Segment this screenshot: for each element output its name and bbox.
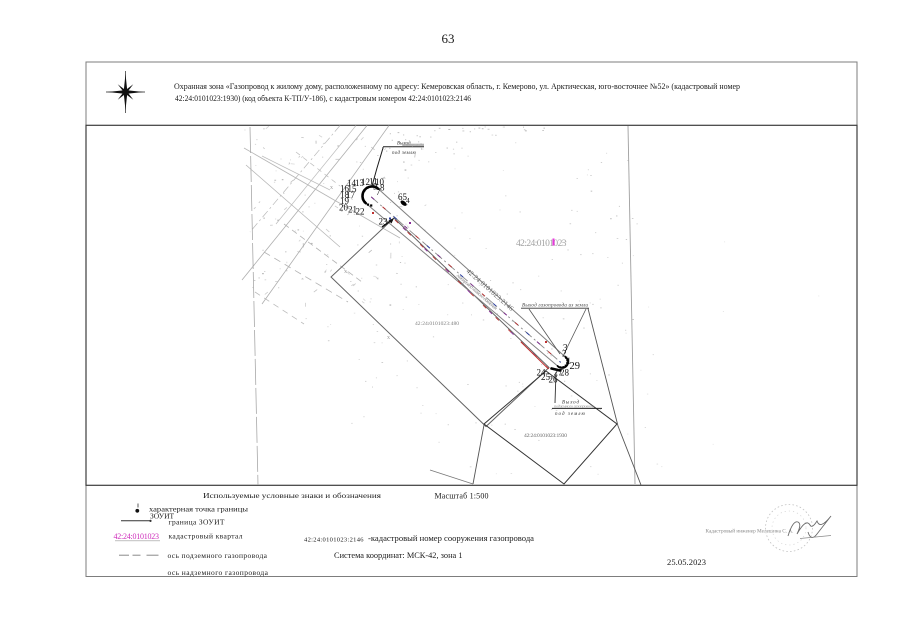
svg-text:42:24:0101023: 42:24:0101023 xyxy=(516,239,567,249)
svg-text:22: 22 xyxy=(356,207,365,217)
svg-text:ось надземного газопровода: ось надземного газопровода xyxy=(168,568,269,577)
svg-text:Кадастровый инженер Мелешина: Кадастровый инженер Мелешина С. А. xyxy=(706,530,794,535)
svg-text:под землю: под землю xyxy=(555,412,585,417)
svg-text:Масштаб 1:500: Масштаб 1:500 xyxy=(435,492,489,501)
svg-text:42:24:0101023:1930: 42:24:0101023:1930 xyxy=(524,433,567,439)
svg-text:42:24:0101023:1930) (код объек: 42:24:0101023:1930) (код объекта К-ТП/У-… xyxy=(175,94,471,103)
svg-text:Система координат: МСК-42, зон: Система координат: МСК-42, зона 1 xyxy=(334,550,463,560)
svg-text:42:24:0101023: 42:24:0101023 xyxy=(114,532,160,541)
svg-text:8: 8 xyxy=(380,183,385,193)
svg-text:Используемые условные знаки и: Используемые условные знаки и обозначени… xyxy=(203,491,382,500)
svg-text:7: 7 xyxy=(376,187,381,197)
svg-text:-кадастровый номер сооружения: -кадастровый номер сооружения газопровод… xyxy=(368,534,534,543)
svg-text:42:24:0101023:480: 42:24:0101023:480 xyxy=(415,321,459,327)
svg-text:кадастровый квартал: кадастровый квартал xyxy=(169,532,243,541)
svg-text:42:24:0101023:2146: 42:24:0101023:2146 xyxy=(304,537,364,544)
svg-text:х: х xyxy=(330,185,333,191)
svg-text:х: х xyxy=(387,335,390,341)
svg-text:под землю: под землю xyxy=(392,151,416,156)
svg-text:подземного газопровода: подземного газопровода xyxy=(554,404,595,409)
svg-text:Выход газопровода из земли: Выход газопровода из земли xyxy=(522,302,588,309)
svg-text:граница ЗОУИТ: граница ЗОУИТ xyxy=(169,518,225,527)
svg-text:Охранная зона «Газопровод к жи: Охранная зона «Газопровод к жилому дому,… xyxy=(174,82,740,91)
svg-text:х: х xyxy=(344,269,347,275)
svg-text:25.05.2023: 25.05.2023 xyxy=(667,557,706,567)
svg-text:23: 23 xyxy=(379,217,389,227)
svg-text:63: 63 xyxy=(442,31,455,46)
svg-text:26: 26 xyxy=(549,375,559,385)
svg-text:29: 29 xyxy=(570,361,581,372)
svg-text:ось подземного газопровода: ось подземного газопровода xyxy=(168,551,268,560)
svg-text:4: 4 xyxy=(406,196,410,205)
